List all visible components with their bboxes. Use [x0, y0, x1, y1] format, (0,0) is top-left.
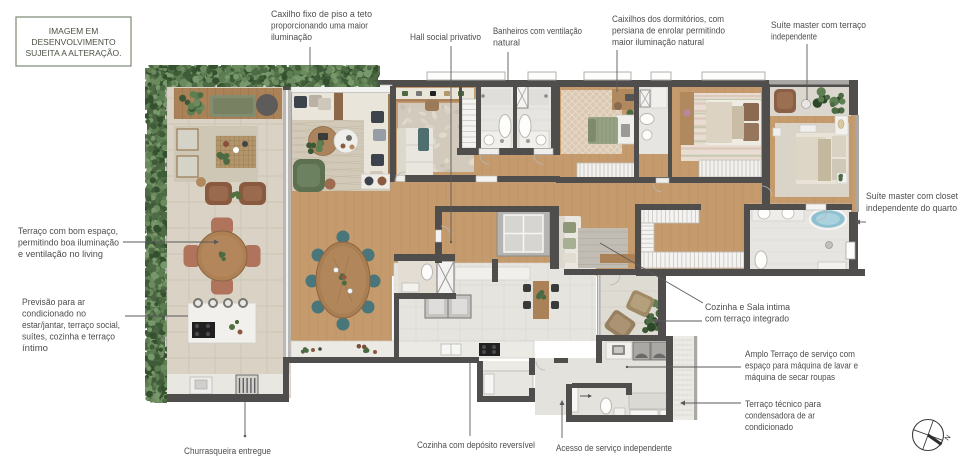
svg-text:maior iluminação natural: maior iluminação natural [612, 37, 704, 47]
svg-text:suítes, cozinha e terraço: suítes, cozinha e terraço [22, 332, 115, 342]
svg-text:Suíte master com terraço: Suíte master com terraço [771, 20, 866, 30]
svg-text:proporcionando uma maior: proporcionando uma maior [271, 21, 368, 31]
svg-text:SUJEITA A ALTERAÇÃO.: SUJEITA A ALTERAÇÃO. [25, 48, 121, 58]
svg-text:espaço para máquina de lavar e: espaço para máquina de lavar e [745, 361, 858, 371]
svg-text:estar/jantar, terraço social,: estar/jantar, terraço social, [22, 320, 120, 330]
svg-text:e ventilação no living: e ventilação no living [18, 249, 103, 259]
svg-text:Terraço técnico para: Terraço técnico para [745, 399, 821, 409]
svg-text:Banheiros com ventilação: Banheiros com ventilação [493, 26, 582, 36]
svg-text:Caixilhos dos dormitórios, com: Caixilhos dos dormitórios, com [612, 14, 724, 24]
svg-text:independente do quarto: independente do quarto [866, 203, 957, 213]
svg-text:com terraço integrado: com terraço integrado [705, 314, 789, 324]
svg-text:Amplo Terraço de serviço com: Amplo Terraço de serviço com [745, 349, 855, 359]
svg-text:independente: independente [771, 32, 817, 42]
svg-text:persiana de enrolar permitindo: persiana de enrolar permitindo [612, 26, 725, 36]
svg-text:iluminação: iluminação [271, 32, 312, 42]
svg-text:Churrasqueira entregue: Churrasqueira entregue [184, 446, 271, 456]
svg-text:Caxilho fixo de piso a teto: Caxilho fixo de piso a teto [271, 9, 372, 19]
svg-text:permitindo boa iluminação: permitindo boa iluminação [18, 238, 119, 248]
svg-text:Cozinha com depósito reversíve: Cozinha com depósito reversível [417, 440, 535, 450]
svg-text:máquina de secar roupas: máquina de secar roupas [745, 372, 836, 382]
svg-text:condicionado: condicionado [745, 422, 793, 432]
svg-text:DESENVOLVIMENTO: DESENVOLVIMENTO [31, 37, 116, 47]
svg-text:íntimo: íntimo [22, 343, 48, 353]
svg-text:Terraço com bom espaço,: Terraço com bom espaço, [18, 226, 118, 236]
svg-text:IMAGEM EM: IMAGEM EM [49, 26, 99, 36]
svg-text:natural: natural [493, 38, 520, 48]
svg-text:Acesso de serviço independente: Acesso de serviço independente [556, 443, 672, 453]
svg-text:Previsão para ar: Previsão para ar [22, 297, 85, 307]
svg-text:condicionado no: condicionado no [22, 309, 86, 319]
svg-text:Suíte master com closet: Suíte master com closet [866, 191, 959, 201]
svg-text:Hall social privativo: Hall social privativo [410, 32, 481, 42]
svg-text:Cozinha e Sala intima: Cozinha e Sala intima [705, 302, 790, 312]
svg-text:condensadora de ar: condensadora de ar [745, 411, 815, 421]
svg-text:N: N [944, 434, 953, 442]
